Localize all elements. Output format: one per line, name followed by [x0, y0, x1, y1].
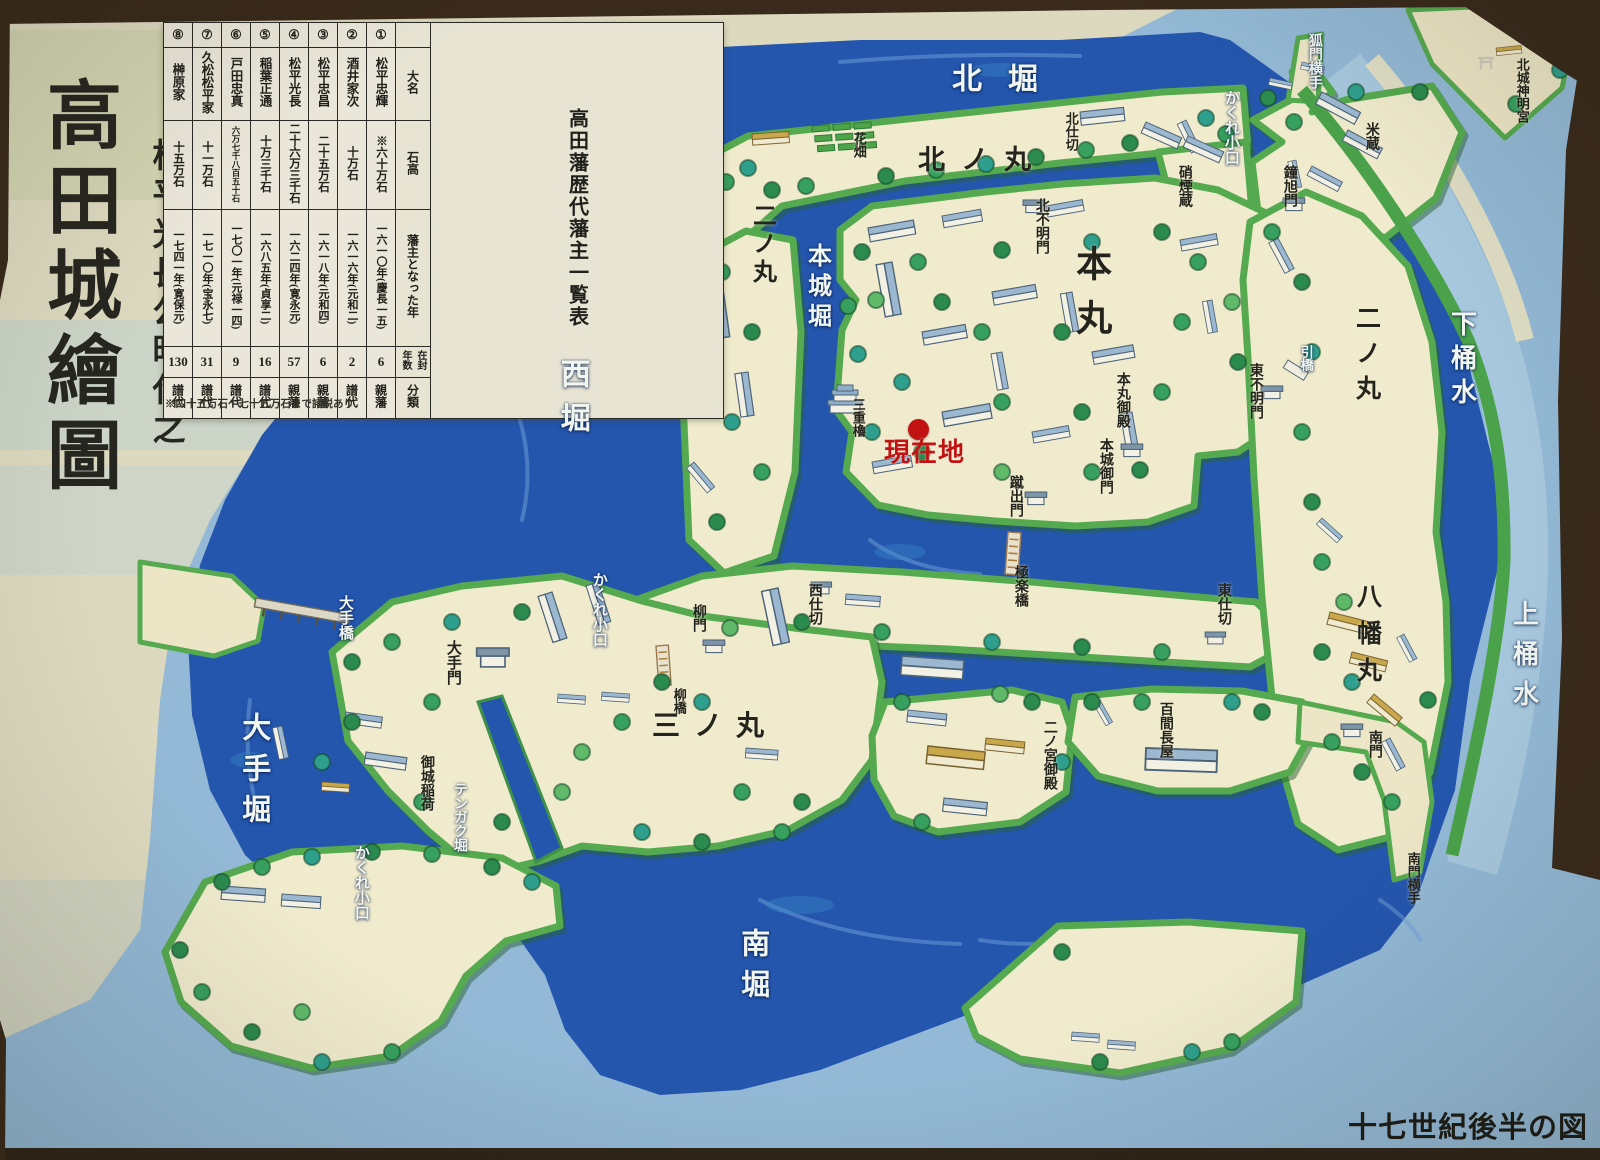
- lord-category: 親藩: [373, 384, 390, 408]
- current-location-dot: [908, 419, 929, 440]
- label-kedashi-mon: 蹴出門: [1007, 475, 1022, 517]
- lord-koku: 六万七千八百五十石: [230, 126, 242, 203]
- row-header-daimyo: 大名: [405, 70, 422, 94]
- current-location-label: 現在地: [884, 439, 965, 467]
- label-ote-mon: 大手門: [444, 640, 460, 685]
- label-ote-bashi: 大手橋: [336, 595, 352, 640]
- label-honjo-gomon: 本城御門: [1097, 438, 1112, 494]
- label-higashi-akazumon: 東不明門: [1247, 363, 1262, 419]
- lord-year: 一六一六年(元和二): [344, 229, 360, 324]
- lord-num: ⑥: [230, 27, 242, 42]
- lords-table: ⑧ ⑦ ⑥ ⑤ ④ ③ ② ① 高田藩歴代藩主一覧表 榊原家 久松松平家 戸田忠…: [163, 22, 724, 419]
- lord-year: 一七一〇年(宝永七): [199, 229, 215, 324]
- lord-koku: 十五万石: [170, 141, 186, 187]
- row-header-kokudaka: 石高: [405, 151, 422, 175]
- lord-tenure: 9: [233, 354, 240, 369]
- era-caption: 十七世紀後半の図: [1348, 1104, 1588, 1146]
- label-minami-mon: 南門: [1366, 730, 1381, 758]
- lord-name: 松平光長: [285, 57, 304, 107]
- lord-num: ③: [317, 27, 329, 42]
- lord-koku: 二十六万三千石: [286, 123, 302, 204]
- lord-tenure: 57: [288, 354, 301, 369]
- lord-name: 久松松平家: [198, 51, 217, 114]
- label-ninomaru-west: 二ノ丸: [748, 203, 773, 287]
- lord-tenure: 6: [378, 354, 385, 369]
- lord-tenure: 130: [168, 354, 188, 369]
- lord-year: 一六一〇年(慶長一五): [373, 223, 389, 329]
- lord-name: 松平忠輝: [372, 57, 391, 107]
- label-sanju-yagura: 三重櫓: [851, 398, 865, 437]
- lord-num: ⑤: [259, 27, 271, 42]
- row-header-category: 分類: [405, 384, 422, 408]
- lord-year: 一六一八年(元和四): [315, 229, 331, 324]
- label-kita-bori: 北堀: [952, 64, 1064, 96]
- lord-num: ①: [375, 27, 387, 42]
- row-header-tenure: 在封年数: [398, 348, 428, 372]
- lord-year: 一六二四年(寛永元): [286, 229, 302, 324]
- label-gokuraku-bashi: 極楽橋: [1012, 565, 1027, 607]
- lord-num: ⑦: [201, 27, 213, 42]
- label-minamimon-yokote: 南門横手: [1406, 852, 1420, 904]
- lord-koku: 十一万石: [199, 141, 215, 187]
- lord-num: ②: [346, 27, 358, 42]
- label-kakure-koguchi-west: かくれ小口: [590, 572, 606, 647]
- label-hiki-bashi: 引橋: [1299, 345, 1313, 371]
- label-shimo-okesui: 下桶水: [1448, 310, 1476, 412]
- label-honmaru: 本丸: [1072, 245, 1110, 353]
- label-komon-yokote: 狐門横手: [1306, 33, 1321, 89]
- lord-name: 稲葉正通: [256, 57, 275, 107]
- label-gojo-inari: 御城稲荷: [418, 755, 433, 811]
- lord-name: 榊原家: [169, 63, 188, 101]
- lord-tenure: 31: [201, 354, 214, 369]
- lord-year: 一七〇一年(元禄一四): [228, 223, 244, 329]
- lord-tenure: 2: [349, 354, 356, 369]
- label-kita-akazumon: 北不明門: [1033, 198, 1048, 254]
- label-kane-mon: 鐘旭門: [1281, 165, 1296, 207]
- label-nishi-bori: 西堀: [556, 358, 588, 446]
- label-yanagi-mon: 柳門: [690, 604, 705, 632]
- label-ote-bori: 大手堀: [238, 712, 269, 835]
- label-ninomaru-east: 二ノ丸: [1352, 305, 1379, 410]
- lord-tenure: 16: [259, 354, 272, 369]
- lord-koku: 二十五万石: [315, 135, 331, 193]
- label-kitanomaru: 北ノ丸: [918, 146, 1047, 175]
- label-honjo-bori: 本城堀: [803, 243, 828, 333]
- lord-name: 酒井家次: [343, 57, 362, 107]
- lord-tenure: 6: [320, 354, 327, 369]
- castle-map-signboard: 松平光長公時代之 高田城繪圖 ⑧ ⑦ ⑥ ⑤ ④ ③ ② ① 高田藩歴代藩主一覧…: [0, 0, 1600, 1160]
- label-kitashiro-shinmeigu: 北城神明宮: [1515, 58, 1529, 123]
- lord-year: 一七四一年(寛保元): [170, 229, 186, 324]
- label-minami-bori: 南堀: [737, 928, 768, 1010]
- lord-koku: 十万三千石: [257, 135, 273, 193]
- row-header-year: 藩主となった年: [405, 234, 422, 318]
- lord-name: 松平忠昌: [314, 57, 333, 107]
- label-nishi-shikiri: 西仕切: [806, 583, 821, 625]
- label-kami-okesui: 上桶水: [1510, 600, 1538, 720]
- board-title-main: 高田城繪圖: [22, 26, 131, 578]
- label-shoenkura: 硝煙蔵: [1176, 165, 1191, 207]
- label-hachiman-maru: 八幡丸: [1353, 583, 1380, 694]
- label-kita-shikiri: 北仕切: [1064, 112, 1078, 151]
- lord-num: ⑧: [172, 27, 184, 42]
- label-sannomaru: 三ノ丸: [652, 712, 778, 742]
- label-hanabatake: 花畑: [852, 132, 866, 158]
- label-honmaru-goten: 本丸御殿: [1114, 372, 1129, 428]
- label-hyakken-nagaya: 百間長屋: [1157, 702, 1172, 758]
- lord-num: ④: [288, 27, 300, 42]
- table-footnote: ※四十五万石〜七十五万石まで諸説あり: [165, 396, 354, 411]
- label-kakure-koguchi-southwest: かくれ小口: [352, 845, 368, 920]
- lord-name: 戸田忠真: [227, 57, 246, 107]
- lord-year: 一六八五年(貞享二): [257, 229, 273, 324]
- label-higashi-shikiri: 東仕切: [1215, 583, 1230, 625]
- label-komekura: 米蔵: [1363, 122, 1378, 150]
- label-ninomiya-goten: 二ノ宮御殿: [1041, 720, 1056, 790]
- label-tengaku-bori: テンガク堀: [451, 782, 466, 852]
- table-title: 高田藩歴代藩主一覧表: [563, 108, 592, 328]
- label-kakure-koguchi-north: かくれ小口: [1222, 90, 1238, 165]
- table-row-numbers: ⑧ ⑦ ⑥ ⑤ ④ ③ ② ① 高田藩歴代藩主一覧表: [164, 23, 724, 48]
- lord-koku: 十万石: [344, 146, 360, 181]
- lord-koku: ※六十万石: [373, 135, 389, 193]
